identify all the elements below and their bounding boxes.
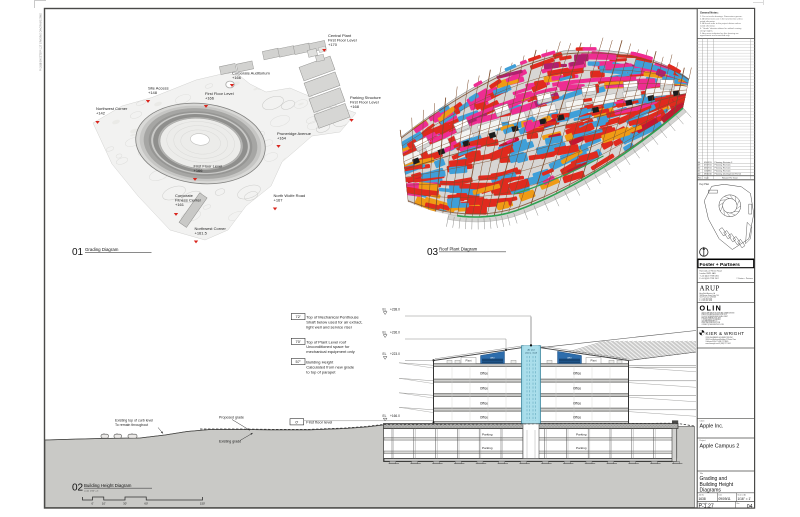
svg-text:Apple Inc.: Apple Inc. — [700, 423, 724, 429]
svg-text:02: 02 — [72, 483, 84, 494]
svg-text:Key Plan: Key Plan — [700, 183, 710, 186]
svg-text:First floor level: First floor level — [306, 420, 332, 425]
svg-text:150': 150' — [200, 502, 206, 506]
svg-text:Planning Revision: Planning Revision — [715, 171, 731, 173]
svg-text:Planning Revision: Planning Revision — [715, 165, 731, 167]
svg-text:P-1.27: P-1.27 — [699, 504, 714, 510]
svg-text:Office: Office — [480, 402, 488, 406]
svg-text:Scale at A1: Scale at A1 — [738, 493, 747, 496]
svg-text:Rev: Rev — [698, 178, 702, 180]
svg-text:07/27/11: 07/27/11 — [704, 165, 713, 167]
svg-text:CIVIL ENGINEERS & SURVEYORS IN: CIVIL ENGINEERS & SURVEYORS INC. — [706, 337, 734, 339]
svg-text:57': 57' — [296, 359, 301, 364]
svg-text:OLIN: OLIN — [700, 304, 723, 313]
svg-text:+148: +148 — [148, 90, 158, 95]
svg-text:EL: EL — [383, 352, 387, 356]
svg-text:Parking: Parking — [576, 432, 587, 436]
svg-text:Existing grade: Existing grade — [219, 440, 241, 444]
svg-text:Planning Revision 3: Planning Revision 3 — [715, 162, 734, 164]
svg-text:KIER & WRIGHT: KIER & WRIGHT — [706, 331, 745, 336]
svg-text:ARUP: ARUP — [700, 285, 720, 293]
svg-text:Parking: Parking — [576, 446, 587, 450]
svg-text:Plant: Plant — [466, 358, 472, 362]
svg-text:+170: +170 — [328, 42, 338, 47]
svg-text:AHU: AHU — [490, 356, 495, 359]
svg-text:Plant: Plant — [591, 358, 597, 362]
svg-text:09/09/11: 09/09/11 — [719, 497, 731, 501]
svg-text:Office: Office — [480, 416, 488, 420]
svg-text:Date: Date — [719, 493, 723, 496]
svg-text:60': 60' — [144, 502, 148, 506]
svg-text:Foster + Partners: Foster + Partners — [700, 262, 741, 268]
svg-text:01: 01 — [72, 247, 84, 258]
svg-text:10': 10' — [102, 502, 106, 506]
svg-text:Project: Project — [700, 439, 706, 442]
svg-text:EL: EL — [383, 307, 387, 311]
svg-text:+166.0: +166.0 — [390, 414, 400, 418]
svg-text:T +1 415 957 9445: T +1 415 957 9445 — [700, 298, 713, 300]
svg-text:Proposed grade: Proposed grade — [219, 415, 244, 419]
svg-text:Office: Office — [480, 372, 488, 376]
svg-text:Reason For Issue: Reason For Issue — [722, 178, 739, 180]
svg-text:09/09/11: 09/09/11 — [704, 162, 713, 164]
svg-text:Rev: Rev — [737, 503, 740, 505]
svg-text:To remain throughout: To remain throughout — [115, 423, 148, 427]
svg-text:30': 30' — [123, 502, 127, 506]
svg-text:approximate and unverified onl: approximate and unverified only. — [700, 34, 730, 37]
svg-text:F +44 (0)20 7738 1107: F +44 (0)20 7738 1107 — [700, 278, 719, 280]
svg-text:+161.5: +161.5 — [195, 230, 208, 235]
svg-text:+164: +164 — [277, 135, 287, 140]
svg-text:EL: EL — [383, 330, 387, 334]
svg-text:0': 0' — [295, 419, 298, 424]
svg-text:Title: Title — [700, 472, 704, 475]
svg-text:+167: +167 — [274, 197, 284, 202]
svg-text:11/08/10: 11/08/10 — [704, 171, 713, 173]
svg-text:Air and: Air and — [528, 349, 536, 352]
svg-text:Parking: Parking — [482, 432, 493, 436]
svg-text:06/07/11: 06/07/11 — [704, 168, 713, 170]
svg-text:light well and service riser: light well and service riser — [306, 324, 352, 329]
svg-text:+166: +166 — [194, 168, 204, 173]
svg-text:Planning Revision: Planning Revision — [715, 168, 731, 170]
svg-text:AHU: AHU — [567, 356, 572, 359]
svg-text:© Foster + Partners: © Foster + Partners — [736, 277, 753, 280]
svg-text:70': 70' — [296, 339, 301, 344]
svg-text:72': 72' — [296, 314, 301, 319]
svg-text:+161: +161 — [175, 202, 185, 207]
svg-text:Parking: Parking — [482, 446, 493, 450]
svg-text:EL: EL — [383, 414, 387, 418]
svg-text:scale 1/16" = 1': scale 1/16" = 1' — [84, 490, 99, 492]
svg-text:1/16" = 1': 1/16" = 1' — [738, 497, 752, 501]
svg-text:P:\1638\SHEETS\P-1.27 GRADING: P:\1638\SHEETS\P-1.27 GRADING DIAGRAMS.D… — [40, 13, 43, 71]
svg-text:Office: Office — [480, 387, 488, 391]
svg-text:mechanical equipment only: mechanical equipment only — [306, 349, 354, 354]
svg-text:F +1 415 957 9096: F +1 415 957 9096 — [700, 300, 713, 302]
svg-text:Building Height Diagram: Building Height Diagram — [84, 483, 132, 488]
svg-text:+236.0: +236.0 — [390, 330, 400, 334]
svg-text:+223.0: +223.0 — [390, 352, 400, 356]
svg-text:08/31/10: 08/31/10 — [704, 173, 713, 175]
svg-text:to top of parapet: to top of parapet — [306, 369, 336, 374]
svg-text:Planning Development Permit: Planning Development Permit — [715, 172, 742, 175]
svg-text:+166: +166 — [205, 95, 215, 100]
svg-text:+168: +168 — [350, 104, 360, 109]
svg-text:03: 03 — [427, 247, 439, 258]
svg-text:+166: +166 — [232, 75, 242, 80]
svg-text:Grading Diagram: Grading Diagram — [85, 247, 119, 252]
svg-text:attenu. shaft: attenu. shaft — [525, 352, 537, 355]
svg-text:Roof Plant Diagram: Roof Plant Diagram — [439, 247, 478, 252]
svg-text:General Notes:: General Notes: — [700, 11, 719, 15]
svg-text:Apple Campus 2: Apple Campus 2 — [700, 444, 740, 450]
svg-text:04: 04 — [747, 504, 753, 510]
svg-text:+142: +142 — [96, 110, 106, 115]
svg-text:1638: 1638 — [699, 497, 706, 501]
svg-text:+238.0: +238.0 — [390, 307, 400, 311]
svg-text:Client: Client — [700, 419, 705, 422]
